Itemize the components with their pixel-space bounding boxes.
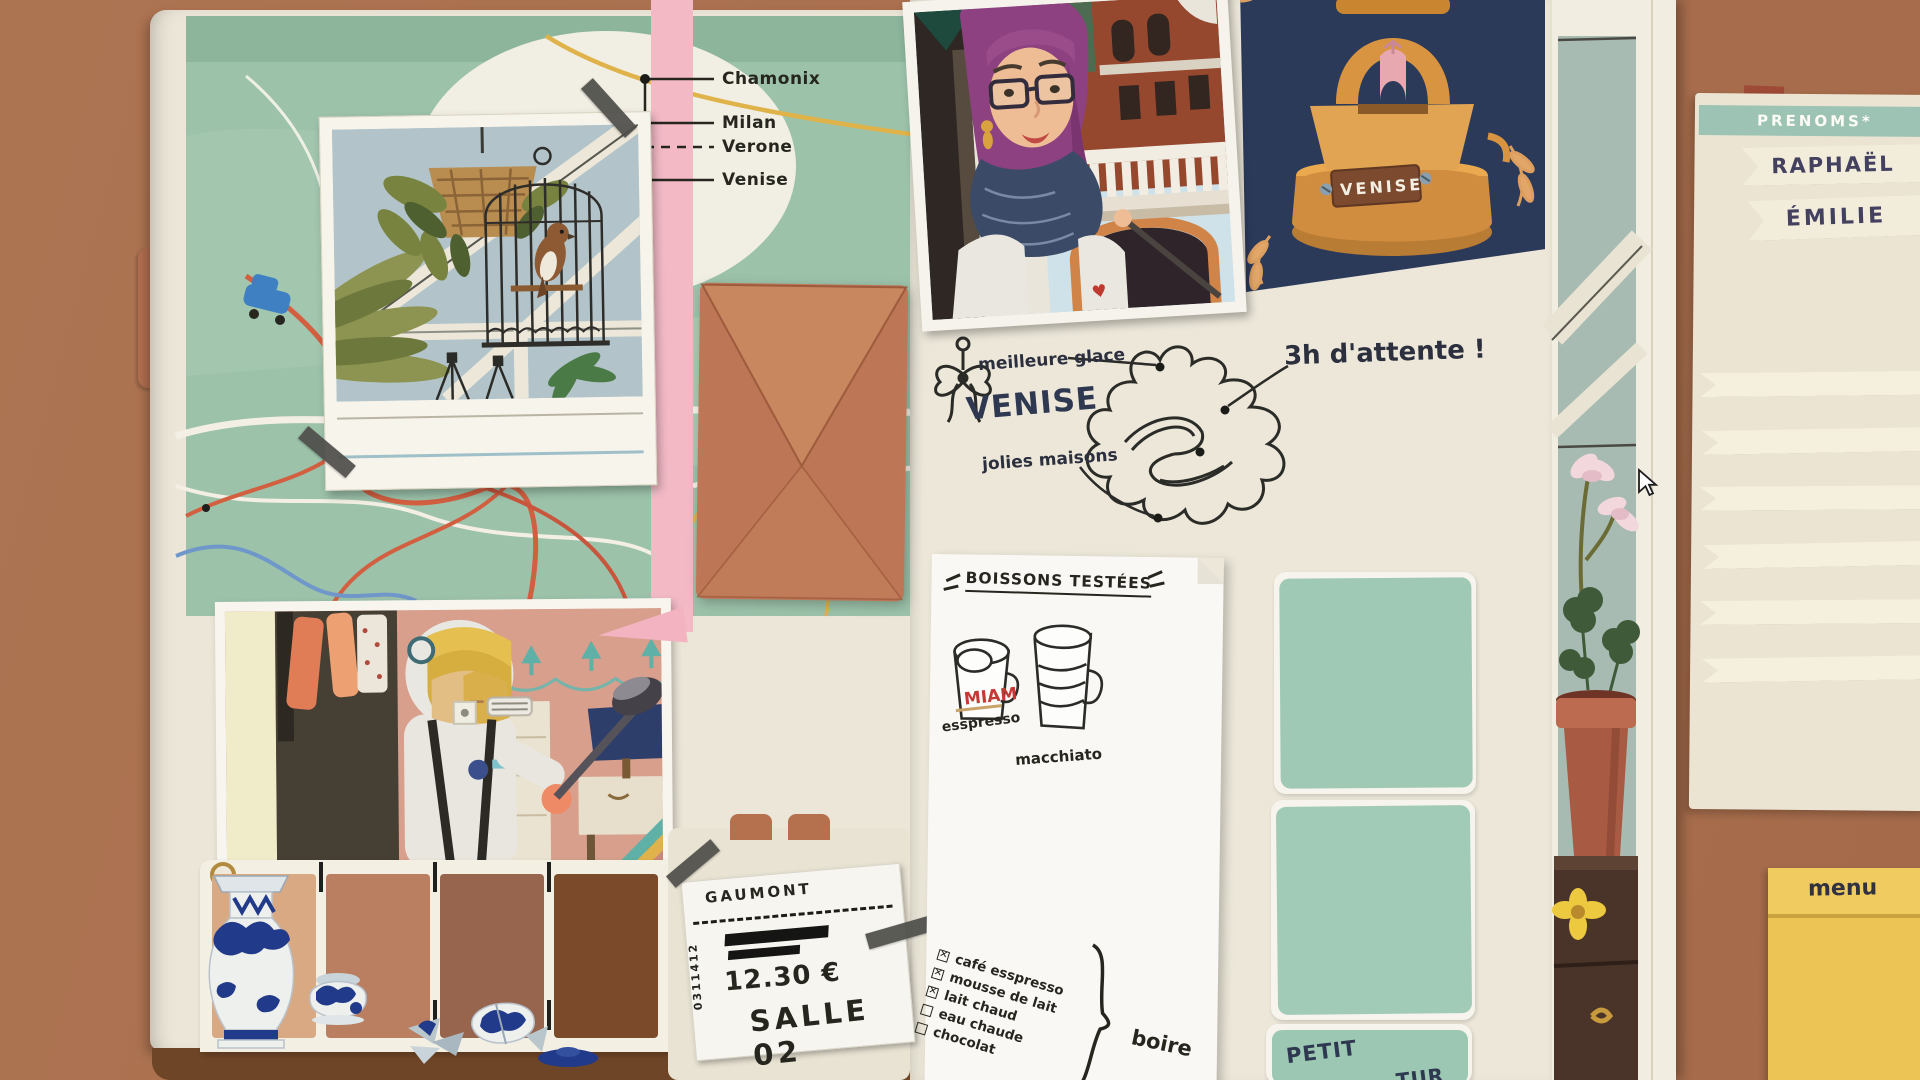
teal-swatch-1 — [1279, 577, 1472, 788]
checkbox-checked: ✕ — [937, 949, 951, 963]
drinks-note: BOISSONS TESTÉES MIAM esspresso macchiat… — [924, 554, 1224, 1080]
ticket-price: 12.30 € — [723, 957, 842, 997]
woman-venice-photo — [902, 0, 1247, 332]
astronaut-kid-scene — [225, 608, 663, 870]
blank-name-ribbon — [1703, 541, 1920, 569]
dash-mark — [946, 573, 961, 581]
checkbox-checked: ✕ — [926, 985, 940, 999]
teal-swatch-2 — [1276, 805, 1472, 1015]
greenhouse-polaroid — [319, 111, 657, 491]
folder-tab — [788, 814, 830, 840]
map-label-milan: Milan — [722, 113, 777, 133]
polaroid-rule — [337, 412, 643, 419]
porcelain-vases — [196, 868, 666, 1080]
greenhouse-photo — [332, 124, 643, 401]
broken-round-vase — [472, 1003, 548, 1052]
drinks-note-title: BOISSONS TESTÉES — [965, 569, 1152, 598]
name-ribbon-raphael: RAPHAËL — [1742, 144, 1920, 186]
map-label-chamonix: Chamonix — [722, 69, 820, 89]
drinks-checklist: ✕ café esspresso ✕ mousse de lait ✕ lait… — [913, 946, 1066, 1075]
map-label-venise: Venise — [722, 170, 788, 190]
astronaut-kid-photo — [215, 598, 673, 880]
envelope — [696, 283, 908, 602]
blank-name-ribbon — [1702, 655, 1920, 683]
ticket-dashed-line — [693, 905, 893, 925]
map-label-verone: Verone — [722, 137, 792, 157]
blank-name-ribbon — [1700, 599, 1920, 625]
menu-label: menu — [1808, 875, 1878, 901]
music-box: VENISE — [1292, 0, 1507, 256]
blank-name-ribbon — [1700, 485, 1920, 511]
name-ribbon-emilie: ÉMILIE — [1747, 195, 1920, 241]
vase-lid — [538, 1047, 598, 1067]
folder-tab — [730, 814, 772, 840]
woman-venice-scene — [914, 0, 1235, 320]
cinema-ticket: GAUMONT 0311412 12.30 € SALLE 02 — [681, 863, 916, 1061]
sticky-note-fold-line — [1768, 914, 1920, 918]
menu-sticky-note[interactable]: menu — [1768, 868, 1920, 1080]
checkbox-unchecked — [920, 1003, 934, 1017]
polaroid-rule — [338, 450, 644, 458]
round-pot — [310, 973, 366, 1025]
blank-name-ribbon — [1700, 371, 1920, 397]
dash-mark — [943, 585, 958, 591]
blank-name-ribbon — [1702, 427, 1920, 455]
next-page-sliver — [1552, 0, 1676, 1080]
note-folded-corner — [1198, 558, 1224, 584]
redacted-line — [728, 945, 800, 960]
checkbox-unchecked — [915, 1021, 929, 1035]
coffee-cups-drawing — [937, 606, 1114, 758]
checkbox-checked: ✕ — [931, 967, 945, 981]
broken-shards — [408, 1018, 464, 1064]
redacted-line — [725, 925, 829, 946]
ticket-brand: GAUMONT — [704, 880, 812, 907]
venice-music-box-postcard: VENISE — [1240, 0, 1545, 292]
tall-vase — [209, 876, 293, 1048]
mouse-cursor — [1636, 468, 1662, 498]
group-label-drink: boire — [1129, 1025, 1194, 1061]
names-pad-header: PRENOMS* — [1699, 105, 1920, 137]
scrapbook-screen: Chamonix Milan Verone Venise — [0, 0, 1920, 1080]
brace-doodle — [1072, 942, 1118, 1080]
